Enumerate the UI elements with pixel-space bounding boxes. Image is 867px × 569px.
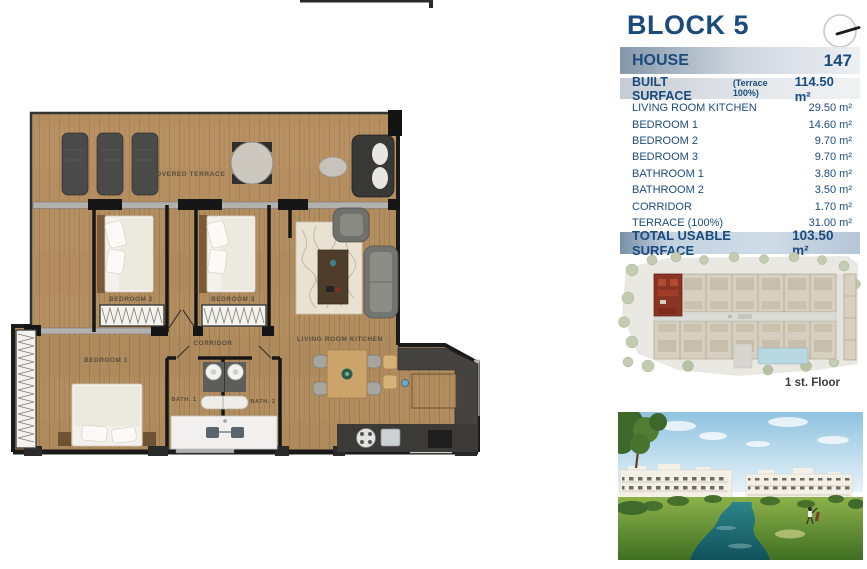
table-row: BATHROOM 2 3.50 m² [620,182,860,198]
row-label: BATHROOM 2 [632,184,704,196]
terrace-dining-table [231,142,273,184]
sun-loungers [62,133,158,195]
terrace-corner-pillar [388,110,402,136]
row-label: BEDROOM 2 [632,135,698,147]
label-bedroom-1: BEDROOM 1 [84,357,128,364]
house-bar: HOUSE 147 [620,47,860,74]
row-label: LIVING ROOM KITCHEN [632,102,757,114]
label-bath-1: BATH. 1 [171,397,196,403]
row-value: 9.70 m² [815,135,852,147]
floor-plan-drawing: COVERED TERRACE BEDROOM 2 BEDROOM 3 CORR… [0,0,520,569]
built-surface-note: (Terrace 100%) [733,78,795,98]
surface-table: LIVING ROOM KITCHEN 29.50 m² BEDROOM 1 1… [620,100,860,231]
plan-sheet: COVERED TERRACE BEDROOM 2 BEDROOM 3 CORR… [0,0,867,569]
building-render-photo [618,412,863,560]
row-value: 3.80 m² [815,168,852,180]
house-number: 147 [824,51,852,71]
table-row: BEDROOM 2 9.70 m² [620,133,860,149]
label-corridor: CORRIDOR [193,340,232,347]
table-row: BEDROOM 1 14.60 m² [620,116,860,132]
terrace-sofa [352,135,394,197]
site-buildings [654,274,856,360]
row-label: CORRIDOR [632,201,692,213]
row-label: BEDROOM 3 [632,151,698,163]
site-plan: 1 st. Floor [618,252,862,392]
table-row: CORRIDOR 1.70 m² [620,198,860,214]
total-surface-bar: TOTAL USABLE SURFACE 103.50 m² [620,232,860,254]
built-surface-bar: BUILT SURFACE (Terrace 100%) 114.50 m² [620,78,860,99]
row-value: 29.50 m² [809,102,852,114]
label-bath-2: BATH. 2 [250,399,275,405]
table-row: BEDROOM 3 9.70 m² [620,149,860,165]
label-bedroom-2: BEDROOM 2 [109,296,153,303]
top-border-line [300,0,433,8]
floor-label: 1 st. Floor [785,377,840,389]
table-row: BATHROOM 1 3.80 m² [620,166,860,182]
label-living-room-kitchen: LIVING ROOM KITCHEN [297,336,383,343]
row-label: BATHROOM 1 [632,168,704,180]
block-title: BLOCK 5 [627,10,749,41]
house-label: HOUSE [632,52,689,70]
terrace-side-table [319,157,347,177]
label-covered-terrace: COVERED TERRACE [151,171,226,178]
row-value: 1.70 m² [815,201,852,213]
row-label: BEDROOM 1 [632,119,698,131]
table-row: LIVING ROOM KITCHEN 29.50 m² [620,100,860,116]
side-terrace-tint [31,205,94,332]
highlighted-unit [654,274,682,316]
built-surface-label: BUILT SURFACE [632,75,729,103]
built-surface-value: 114.50 m² [795,74,852,104]
label-bedroom-3: BEDROOM 3 [211,296,255,303]
row-value: 9.70 m² [815,151,852,163]
sand-bunker [775,530,805,539]
row-value: 3.50 m² [815,184,852,196]
row-value: 14.60 m² [809,119,852,131]
